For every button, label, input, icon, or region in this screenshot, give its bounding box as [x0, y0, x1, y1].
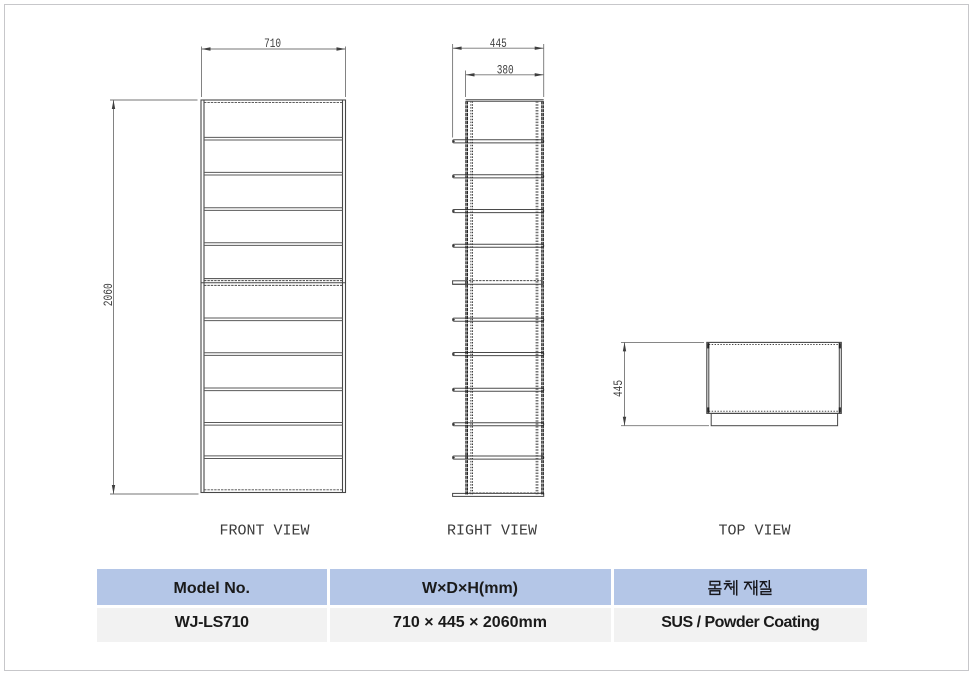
svg-text:445: 445 — [490, 37, 507, 51]
svg-text:TOP VIEW: TOP VIEW — [718, 523, 790, 540]
svg-text:FRONT VIEW: FRONT VIEW — [219, 523, 309, 540]
svg-text:710: 710 — [264, 37, 281, 51]
svg-text:445: 445 — [612, 380, 626, 397]
svg-text:2060: 2060 — [102, 283, 116, 306]
svg-text:RIGHT VIEW: RIGHT VIEW — [447, 523, 537, 540]
svg-text:380: 380 — [497, 63, 514, 77]
